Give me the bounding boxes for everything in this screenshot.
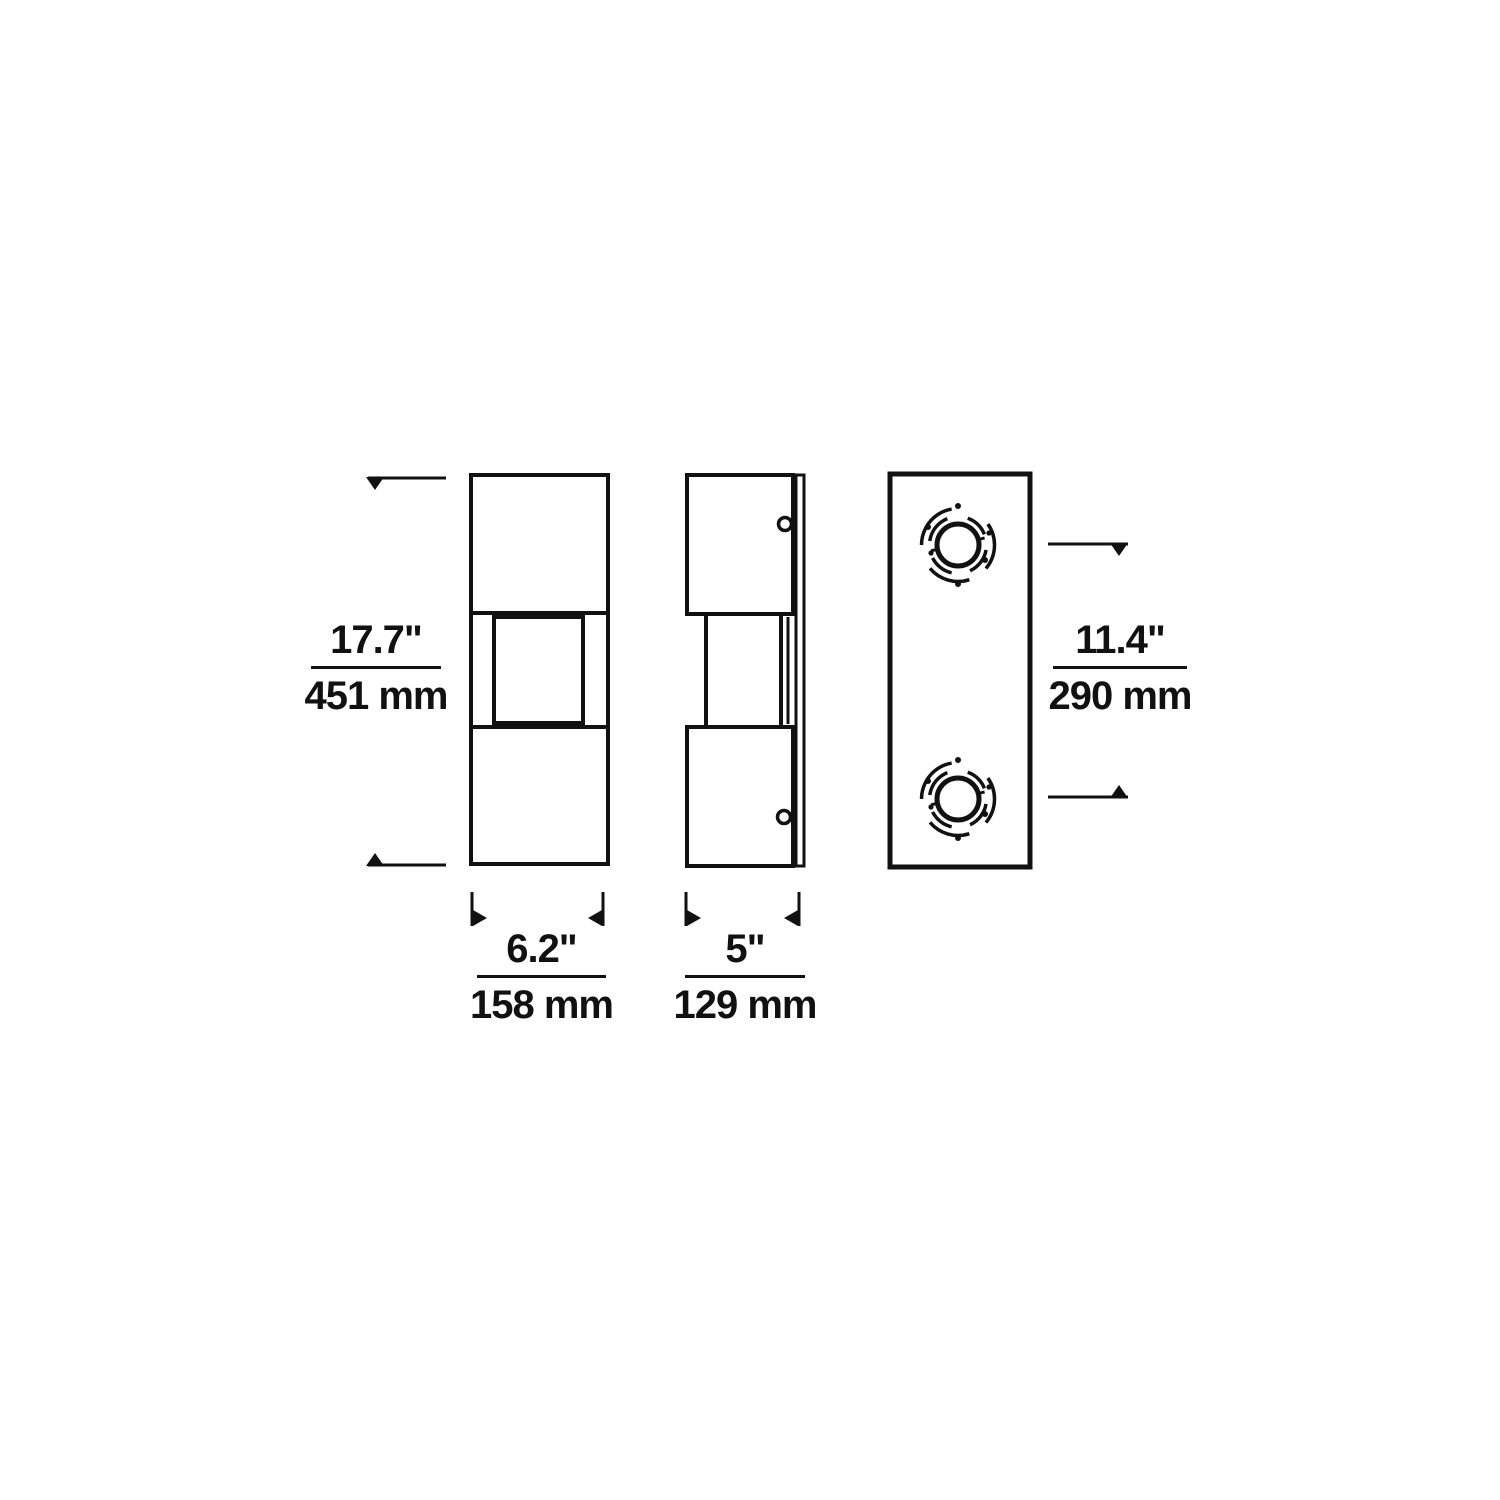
mount-dimension-label: 11.4" 290 mm bbox=[1053, 618, 1187, 718]
arrow-right-icon bbox=[687, 910, 701, 926]
side-view bbox=[687, 475, 804, 866]
width-dimension-ticks bbox=[472, 892, 603, 926]
mounting-hole-top bbox=[907, 494, 1009, 596]
line-art bbox=[0, 0, 1500, 1500]
height-inches: 17.7" bbox=[311, 618, 441, 669]
width-mm: 158 mm bbox=[470, 978, 613, 1027]
arrow-down-icon bbox=[366, 477, 384, 490]
side-top-cylinder bbox=[687, 475, 793, 614]
arrow-down-icon bbox=[1110, 543, 1128, 556]
spec-diagram: 17.7" 451 mm 11.4" 290 mm 6.2" 158 mm 5"… bbox=[0, 0, 1500, 1500]
arrow-up-icon bbox=[1110, 785, 1128, 798]
side-bottom-cylinder bbox=[687, 727, 793, 866]
height-dimension-label: 17.7" 451 mm bbox=[311, 618, 441, 718]
depth-mm: 129 mm bbox=[674, 978, 817, 1027]
arrow-right-icon bbox=[473, 910, 487, 926]
mount-inches: 11.4" bbox=[1053, 618, 1187, 669]
screw-top bbox=[779, 518, 792, 531]
arrow-left-icon bbox=[784, 910, 798, 926]
back-plate-view bbox=[890, 474, 1030, 867]
width-dimension-label: 6.2" 158 mm bbox=[477, 927, 606, 1027]
wall-plate-edge bbox=[796, 475, 804, 866]
front-view bbox=[471, 475, 608, 864]
arrow-up-icon bbox=[366, 853, 384, 866]
mount-mm: 290 mm bbox=[1049, 669, 1192, 718]
depth-dimension-label: 5" 129 mm bbox=[685, 927, 805, 1027]
height-mm: 451 mm bbox=[305, 669, 448, 718]
arrow-left-icon bbox=[588, 910, 602, 926]
screw-bottom bbox=[778, 811, 791, 824]
mounting-hole-bottom bbox=[907, 748, 1009, 850]
width-inches: 6.2" bbox=[477, 927, 606, 978]
front-lamp-column bbox=[494, 617, 583, 723]
depth-inches: 5" bbox=[685, 927, 805, 978]
depth-dimension-ticks bbox=[686, 892, 799, 926]
